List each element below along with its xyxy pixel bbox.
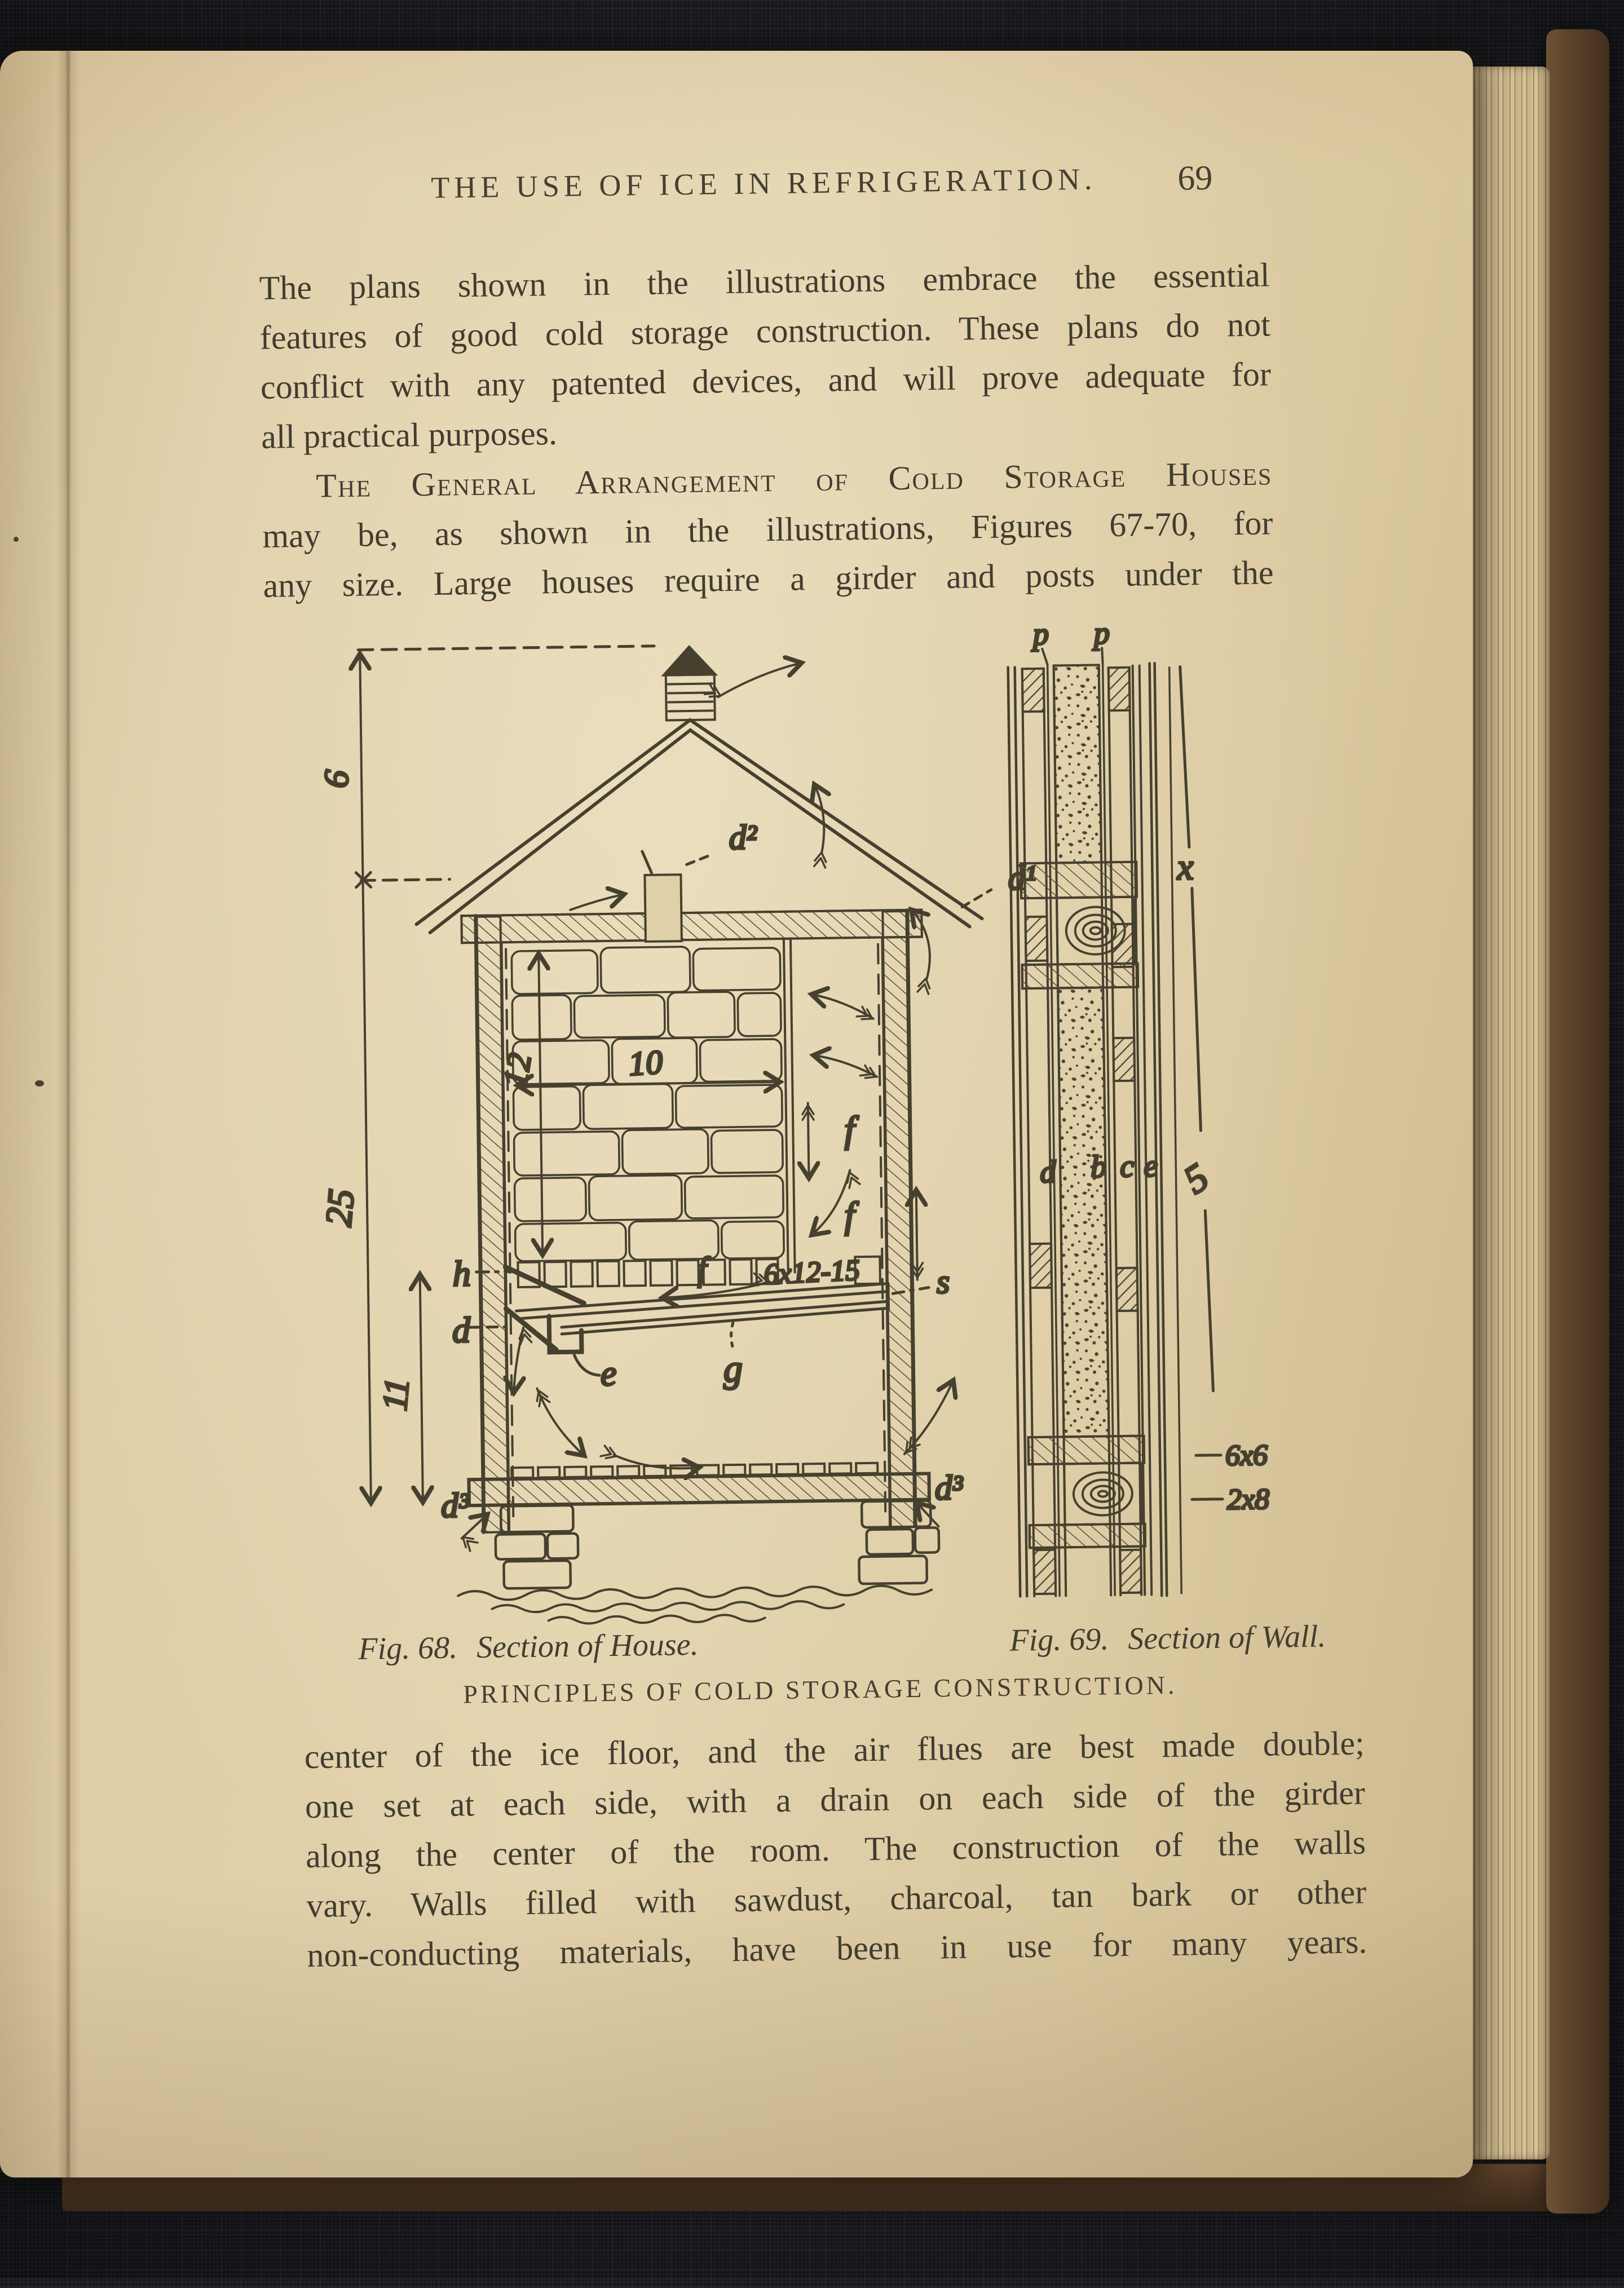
dim-label-10: 10 (628, 1043, 664, 1083)
fig68-caption-title: Section of House. (476, 1627, 699, 1665)
fig69-caption-label: Fig. 69. (1009, 1622, 1109, 1658)
label-paper: p (1091, 616, 1110, 651)
ice-stack (511, 946, 784, 1261)
fig69-caption: Fig. 69.Section of Wall. (1009, 1618, 1326, 1658)
label-layer-b: b (1091, 1149, 1107, 1184)
dim-label-5: 5 (1176, 1155, 1216, 1203)
figure-subtitle: PRINCIPLES OF COLD STORAGE CONSTRUCTION. (279, 1668, 1362, 1712)
label-s: s (936, 1263, 950, 1300)
label-layer-d: d (1040, 1155, 1057, 1190)
label-d: d (452, 1310, 471, 1350)
dim-label-6: 6 (317, 768, 357, 789)
roof-cupola (663, 645, 801, 720)
paragraph-2: The General Arrangement of Cold Storage … (262, 448, 1274, 610)
fig68-caption: Fig. 68.Section of House. (358, 1627, 699, 1667)
label-layer-c: c (1120, 1149, 1135, 1184)
book-photograph: { "book": { "header": { "title": "THE US… (0, 0, 1624, 2278)
wall-dimension-lines (1180, 666, 1213, 1391)
fig69-section-of-wall: p p x 5 d b c e 6x6 2x8 (1007, 614, 1270, 1598)
label-g: g (723, 1347, 743, 1390)
drip-pan (516, 1283, 889, 1335)
label-pan-size: 6x12-15 (763, 1254, 860, 1291)
running-header: THE USE OF ICE IN REFRIGERATION. (259, 159, 1269, 219)
gable-roof (414, 716, 982, 934)
dim-label-11: 11 (376, 1377, 417, 1412)
foundation-piers (495, 1500, 939, 1588)
label-f: f (844, 1109, 859, 1150)
vent-duct (645, 874, 682, 942)
label-f: f (844, 1195, 859, 1236)
dim-label-25: 25 (318, 1187, 363, 1228)
printed-page-content: THE USE OF ICE IN REFRIGERATION. 69 The … (0, 0, 1624, 2288)
label-d3: d³ (441, 1486, 470, 1525)
label-d2: d² (729, 818, 758, 857)
label-h: h (452, 1253, 471, 1293)
label-paper: p (1030, 617, 1049, 652)
label-e: e (601, 1353, 617, 1393)
fig68-caption-label: Fig. 68. (358, 1630, 458, 1666)
label-d3: d³ (934, 1469, 964, 1508)
page-number: 69 (1150, 158, 1241, 199)
fig68-fig69-drawing: 6 25 11 d² (310, 611, 1361, 1640)
label-2x8: 2x8 (1227, 1483, 1270, 1516)
label-layer-e: e (1144, 1149, 1158, 1183)
ground-line (458, 1585, 932, 1625)
label-x: x (1176, 846, 1194, 887)
label-6x6: 6x6 (1225, 1439, 1268, 1472)
label-f: f (697, 1251, 711, 1288)
bottom-floor (469, 1463, 929, 1506)
figure-illustration: 6 25 11 d² (310, 611, 1361, 1640)
fig69-caption-title: Section of Wall. (1128, 1619, 1326, 1657)
sill-timber-lower (1029, 1436, 1146, 1548)
paragraph-3: center of the ice floor, and the air flu… (304, 1718, 1367, 1980)
fig68-section-of-house: 6 25 11 d² (310, 641, 1045, 1627)
dim-label-12: 12 (496, 1050, 539, 1090)
paragraph-1: The plans shown in the illustrations emb… (259, 250, 1272, 461)
